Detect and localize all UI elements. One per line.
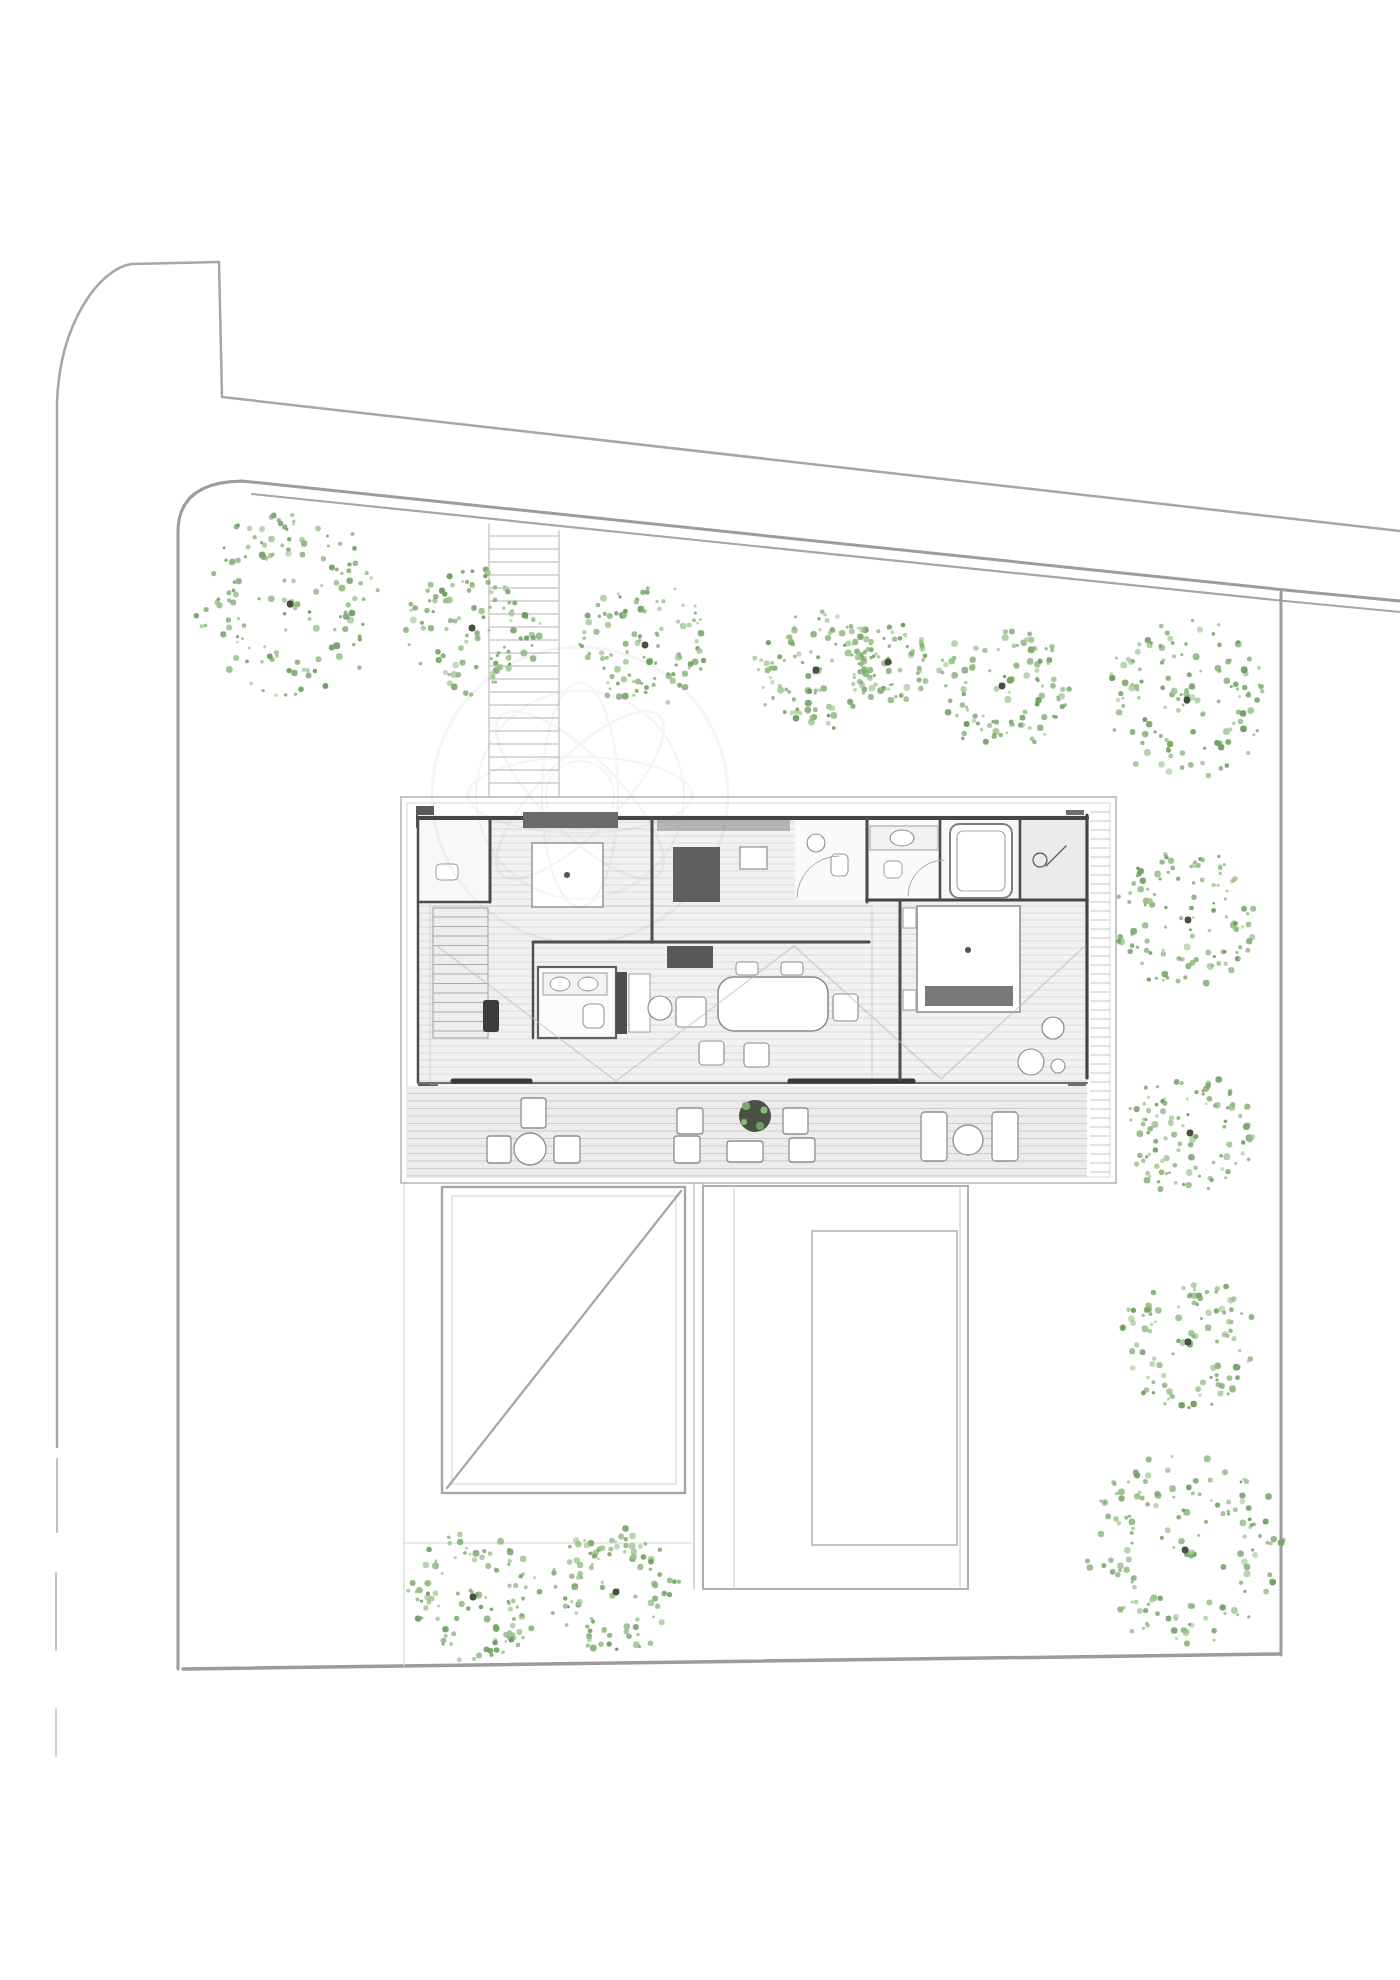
tree-foliage-dot: [1212, 1161, 1216, 1165]
tree-foliage-dot: [551, 1570, 556, 1575]
tree-foliage-dot: [512, 601, 517, 606]
tree-foliage-dot: [329, 565, 335, 571]
tree-icon: [406, 1532, 542, 1663]
tree-foliage-dot: [1192, 881, 1196, 885]
tree-foliage-dot: [1101, 1499, 1108, 1506]
tree-foliage-dot: [524, 636, 529, 641]
tree-foliage-dot: [792, 697, 796, 701]
plan-rect: [629, 974, 650, 1032]
tree-foliage-dot: [1238, 1349, 1241, 1352]
tree-foliage-dot: [1230, 685, 1233, 688]
tree-foliage-dot: [1192, 916, 1195, 919]
tree-foliage-dot: [886, 668, 892, 674]
tree-foliage-dot: [1269, 1542, 1273, 1546]
tree-foliage-dot: [567, 1559, 572, 1564]
tree-foliage-dot: [1191, 1401, 1197, 1407]
tree-foliage-dot: [598, 1641, 604, 1647]
tree-foliage-dot: [839, 630, 846, 637]
tree-foliage-dot: [511, 1599, 516, 1604]
tree-foliage-dot: [413, 605, 418, 610]
tree-foliage-dot: [1239, 1581, 1243, 1585]
tree-foliage-dot: [1225, 739, 1231, 745]
tree-foliage-dot: [245, 660, 249, 664]
plan-rect: [783, 1108, 808, 1134]
tree-foliage-dot: [1130, 729, 1136, 735]
tree-foliage-dot: [1131, 1541, 1134, 1544]
tree-foliage-dot: [469, 692, 474, 697]
tree-foliage-dot: [1165, 1172, 1168, 1175]
tree-foliage-dot: [1101, 1563, 1106, 1568]
tree-foliage-dot: [1140, 962, 1144, 966]
tree-foliage-dot: [1085, 1558, 1090, 1563]
plan-circle: [648, 996, 672, 1020]
tree-foliage-dot: [347, 562, 351, 566]
tree-foliage-dot: [248, 647, 251, 650]
tree-foliage-dot: [1144, 904, 1147, 907]
tree-foliage-dot: [1151, 1121, 1158, 1128]
tree-foliage-dot: [236, 635, 239, 638]
tree-foliage-dot: [494, 1568, 498, 1572]
tree-foliage-dot: [594, 1554, 597, 1557]
tree-foliage-dot: [575, 1541, 581, 1547]
tree-foliage-dot: [1188, 1154, 1195, 1161]
tree-foliage-dot: [1057, 698, 1061, 702]
tree-foliage-dot: [1117, 1562, 1124, 1569]
tree-foliage-dot: [1120, 662, 1127, 669]
tree-foliage-dot: [770, 680, 774, 684]
tree-foliage-dot: [472, 1657, 476, 1661]
tree-foliage-dot: [473, 1550, 480, 1557]
tree-foliage-dot: [1128, 949, 1133, 954]
tree-foliage-dot: [597, 1557, 600, 1560]
tree-foliage-dot: [965, 705, 968, 708]
tree-icon: [1129, 1076, 1256, 1192]
tree-foliage-dot: [632, 631, 638, 637]
tree-foliage-dot: [816, 655, 820, 659]
tree-foliage-dot: [287, 537, 291, 541]
tree-foliage-dot: [825, 635, 831, 641]
tree-foliage-dot: [1214, 1308, 1219, 1313]
tree-foliage-dot: [1186, 1113, 1189, 1116]
tree-foliage-dot: [291, 579, 296, 584]
site-plan-drawing: [0, 0, 1400, 1980]
tree-foliage-dot: [667, 1592, 672, 1597]
tree-foliage-dot: [1137, 1153, 1143, 1159]
tree-foliage-dot: [1137, 886, 1144, 893]
tree-foliage-dot: [1248, 1525, 1252, 1529]
tree-foliage-dot: [951, 672, 958, 679]
tree-foliage-dot: [349, 610, 355, 616]
tree-foliage-dot: [1227, 1512, 1230, 1515]
tree-foliage-dot: [295, 601, 301, 607]
tree-foliage-dot: [1165, 1467, 1171, 1473]
tree-foliage-dot: [1246, 912, 1249, 915]
tree-foliage-dot: [507, 1563, 510, 1566]
tree-foliage-dot: [1126, 657, 1131, 662]
tree-foliage-dot: [292, 520, 296, 524]
tree-foliage-dot: [1155, 977, 1158, 980]
plan-rect: [950, 824, 1012, 898]
tree-foliage-dot: [833, 714, 836, 717]
tree-foliage-dot: [1153, 893, 1157, 897]
tree-foliage-dot: [1166, 976, 1170, 980]
tree-foliage-dot: [1135, 687, 1140, 692]
tree-foliage-dot: [827, 714, 831, 718]
tree-foliage-dot: [948, 658, 955, 665]
tree-foliage-dot: [1178, 1402, 1185, 1409]
tree-foliage-dot: [616, 693, 623, 700]
tree-trunk-dot: [613, 1589, 620, 1596]
tree-foliage-dot: [883, 637, 886, 640]
tree-foliage-dot: [1240, 1520, 1247, 1527]
tree-foliage-dot: [1188, 906, 1192, 910]
tree-foliage-dot: [1143, 1608, 1148, 1613]
tree-foliage-dot: [825, 618, 830, 623]
tree-foliage-dot: [1146, 721, 1152, 727]
tree-foliage-dot: [298, 687, 304, 693]
tree-foliage-dot: [1159, 859, 1164, 864]
tree-foliage-dot: [696, 622, 699, 625]
tree-foliage-dot: [1153, 1503, 1158, 1508]
tree-foliage-dot: [353, 561, 359, 567]
tree-foliage-dot: [698, 630, 705, 637]
tree-foliage-dot: [352, 596, 357, 601]
tree-foliage-dot: [1136, 1130, 1143, 1137]
tree-foliage-dot: [1229, 1307, 1234, 1312]
tree-foliage-dot: [645, 590, 650, 595]
tree-foliage-dot: [1247, 1157, 1251, 1161]
tree-foliage-dot: [441, 1572, 444, 1575]
tree-foliage-dot: [268, 595, 275, 602]
tree-foliage-dot: [1186, 1182, 1192, 1188]
tree-foliage-dot: [338, 584, 345, 591]
tree-foliage-dot: [616, 682, 620, 686]
tree-foliage-dot: [1134, 1472, 1140, 1478]
tree-foliage-dot: [1150, 1361, 1156, 1367]
plan-rect: [677, 1108, 703, 1134]
tree-foliage-dot: [1221, 1333, 1226, 1338]
tree-foliage-dot: [1182, 1509, 1186, 1513]
tree-foliage-dot: [290, 513, 294, 517]
tree-foliage-dot: [1193, 1478, 1199, 1484]
tree-foliage-dot: [1118, 1489, 1125, 1496]
tree-foliage-dot: [568, 1545, 572, 1549]
tree-foliage-dot: [609, 1538, 614, 1543]
tree-foliage-dot: [257, 597, 261, 601]
tree-foliage-dot: [602, 666, 605, 669]
tree-icon: [752, 609, 876, 730]
tree-foliage-dot: [1161, 1373, 1166, 1378]
tree-foliage-dot: [694, 611, 697, 614]
tree-foliage-dot: [426, 1592, 430, 1596]
tree-foliage-dot: [868, 685, 875, 692]
tree-foliage-dot: [1228, 1092, 1232, 1096]
tree-foliage-dot: [618, 1534, 624, 1540]
tree-foliage-dot: [624, 1623, 631, 1630]
tree-foliage-dot: [1224, 678, 1231, 685]
tree-foliage-dot: [1154, 1164, 1159, 1169]
tree-foliage-dot: [1032, 646, 1037, 651]
tree-foliage-dot: [1179, 916, 1183, 920]
tree-foliage-dot: [659, 1619, 665, 1625]
tree-foliage-dot: [1216, 1382, 1222, 1388]
tree-foliage-dot: [961, 686, 967, 692]
tree-foliage-dot: [501, 1650, 505, 1654]
tree-foliage-dot: [1229, 1386, 1235, 1392]
tree-foliage-dot: [648, 1641, 653, 1646]
tree-foliage-dot: [274, 694, 277, 697]
tree-foliage-dot: [522, 612, 529, 619]
tree-foliage-dot: [447, 673, 450, 676]
tree-foliage-dot: [299, 537, 305, 543]
tree-foliage-dot: [1254, 697, 1260, 703]
tree-trunk-dot: [885, 659, 892, 666]
tree-trunk-dot: [287, 601, 294, 608]
tree-foliage-dot: [308, 610, 312, 614]
tree-foliage-dot: [315, 526, 321, 532]
tree-foliage-dot: [1186, 1169, 1193, 1176]
tree-foliage-dot: [471, 605, 477, 611]
tree-foliage-dot: [1256, 729, 1260, 733]
tree-foliage-dot: [1183, 975, 1187, 979]
tree-foliage-dot: [271, 513, 277, 519]
tree-foliage-dot: [1203, 1616, 1208, 1621]
tree-foliage-dot: [1157, 1180, 1161, 1184]
tree-foliage-dot: [1183, 1630, 1189, 1636]
tree-foliage-dot: [479, 1554, 485, 1560]
tree-foliage-dot: [687, 622, 692, 627]
tree-foliage-dot: [1147, 977, 1151, 981]
tree-foliage-dot: [1152, 1391, 1156, 1395]
tree-foliage-dot: [633, 1594, 637, 1598]
tree-foliage-dot: [608, 1547, 613, 1552]
tree-foliage-dot: [200, 624, 204, 628]
tree-foliage-dot: [1190, 934, 1195, 939]
tree-foliage-dot: [1252, 1522, 1256, 1526]
tree-foliage-dot: [1171, 1627, 1178, 1634]
tree-foliage-dot: [580, 644, 584, 648]
tree-foliage-dot: [609, 674, 614, 679]
tree-foliage-dot: [1223, 728, 1230, 735]
tree-foliage-dot: [1144, 1086, 1148, 1090]
tree-foliage-dot: [361, 623, 364, 626]
tree-foliage-dot: [1142, 1314, 1145, 1317]
tree-foliage-dot: [1151, 1290, 1156, 1295]
tree-foliage-dot: [1220, 1604, 1226, 1610]
plan-rect: [699, 1041, 724, 1065]
tree-foliage-dot: [973, 645, 978, 650]
plan-rect: [744, 1043, 769, 1067]
tree-foliage-dot: [476, 1652, 482, 1658]
plan-circle: [965, 947, 971, 953]
tree-foliage-dot: [921, 658, 925, 662]
tree-foliage-dot: [1184, 1641, 1190, 1647]
tree-foliage-dot: [1012, 644, 1017, 649]
tree-foliage-dot: [1159, 734, 1163, 738]
tree-foliage-dot: [1191, 1334, 1195, 1338]
tree-foliage-dot: [672, 1579, 677, 1584]
plan-rect: [583, 1004, 604, 1028]
tree-foliage-dot: [1198, 1492, 1202, 1496]
tree-foliage-dot: [1205, 1290, 1210, 1295]
tree-foliage-dot: [618, 595, 621, 598]
tree-foliage-dot: [1171, 688, 1178, 695]
tree-foliage-dot: [582, 630, 586, 634]
tree-foliage-dot: [513, 1583, 518, 1588]
tree-foliage-dot: [1180, 750, 1185, 755]
tree-foliage-dot: [573, 1586, 577, 1590]
tree-foliage-dot: [563, 1604, 568, 1609]
tree-foliage-dot: [1263, 1519, 1269, 1525]
tree-foliage-dot: [1162, 978, 1165, 981]
tree-foliage-dot: [658, 1547, 663, 1552]
tree-foliage-dot: [1181, 1124, 1185, 1128]
tree-foliage-dot: [516, 1605, 519, 1608]
tree-foliage-dot: [1170, 1394, 1175, 1399]
tree-foliage-dot: [1180, 957, 1185, 962]
tree-foliage-dot: [677, 1580, 681, 1584]
tree-foliage-dot: [1131, 659, 1135, 663]
tree-foliage-dot: [576, 1599, 582, 1605]
tree-foliage-dot: [1222, 1469, 1228, 1475]
tree-foliage-dot: [788, 639, 794, 645]
tree-foliage-dot: [1216, 961, 1221, 966]
tree-foliage-dot: [1007, 677, 1014, 684]
tree-foliage-dot: [1166, 870, 1170, 874]
tree-foliage-dot: [614, 666, 621, 673]
tree-foliage-dot: [764, 660, 770, 666]
tree-foliage-dot: [1109, 675, 1115, 681]
tree-foliage-dot: [362, 597, 366, 601]
tree-foliage-dot: [506, 655, 512, 661]
tree-foliage-dot: [460, 660, 466, 666]
tree-foliage-dot: [451, 1631, 456, 1636]
tree-foliage-dot: [624, 1537, 628, 1541]
tree-foliage-dot: [519, 636, 523, 640]
plan-rect: [921, 1112, 947, 1161]
tree-icon: [1109, 619, 1264, 778]
plan-rect: [992, 1112, 1018, 1161]
tree-foliage-dot: [520, 1555, 527, 1562]
tree-foliage-dot: [1160, 1158, 1165, 1163]
tree-foliage-dot: [1175, 1636, 1179, 1640]
plan-circle: [953, 1125, 983, 1155]
tree-foliage-dot: [631, 1549, 637, 1555]
tree-foliage-dot: [458, 645, 464, 651]
tree-foliage-dot: [457, 1532, 463, 1538]
tree-foliage-dot: [220, 631, 226, 637]
tree-foliage-dot: [1224, 962, 1228, 966]
tree-foliage-dot: [903, 633, 907, 637]
tree-foliage-dot: [1180, 1081, 1184, 1085]
tree-foliage-dot: [652, 683, 656, 687]
tree-foliage-dot: [1140, 741, 1144, 745]
tree-foliage-dot: [1155, 1114, 1159, 1118]
tree-foliage-dot: [1215, 1076, 1222, 1083]
tree-foliage-dot: [1116, 698, 1121, 703]
tree-foliage-dot: [1211, 1628, 1216, 1633]
tree-foliage-dot: [835, 614, 840, 619]
tree-foliage-dot: [1060, 687, 1065, 692]
tree-foliage-dot: [409, 608, 413, 612]
tree-foliage-dot: [1218, 864, 1222, 868]
tree-foliage-dot: [820, 609, 825, 614]
tree-foliage-dot: [1246, 692, 1251, 697]
tree-foliage-dot: [1168, 1171, 1171, 1174]
tree-foliage-dot: [598, 1546, 602, 1550]
tree-foliage-dot: [638, 1645, 641, 1648]
tree-foliage-dot: [1172, 1546, 1175, 1549]
tree-foliage-dot: [1239, 1492, 1245, 1498]
tree-foliage-dot: [1160, 1108, 1166, 1114]
tree-foliage-dot: [589, 1552, 592, 1555]
tree-foliage-dot: [490, 1608, 493, 1611]
tree-foliage-dot: [1249, 1314, 1255, 1320]
tree-foliage-dot: [425, 588, 430, 593]
tree-foliage-dot: [488, 605, 492, 609]
tree-foliage-dot: [410, 617, 417, 624]
tree-foliage-dot: [677, 683, 682, 688]
tree-foliage-dot: [442, 591, 447, 596]
tree-icon: [1120, 1282, 1255, 1409]
tree-foliage-dot: [1113, 728, 1117, 732]
tree-foliage-dot: [464, 639, 468, 643]
tree-foliage-dot: [796, 707, 800, 711]
tree-foliage-dot: [485, 1563, 491, 1569]
tree-foliage-dot: [1136, 946, 1139, 949]
tree-foliage-dot: [1023, 710, 1028, 715]
tree-foliage-dot: [260, 660, 264, 664]
tree-foliage-dot: [1191, 895, 1196, 900]
tree-foliage-dot: [1208, 929, 1212, 933]
tree-foliage-dot: [432, 1562, 439, 1569]
tree-foliage-dot: [536, 633, 543, 640]
tree-foliage-dot: [1147, 1096, 1151, 1100]
tree-foliage-dot: [1200, 878, 1205, 883]
tree-foliage-dot: [465, 1547, 468, 1550]
tree-foliage-dot: [997, 648, 1000, 651]
tree-foliage-dot: [1028, 637, 1034, 643]
tree-foliage-dot: [805, 707, 812, 714]
tree-trunk-dot: [813, 667, 820, 674]
tree-foliage-dot: [1009, 722, 1014, 727]
tree-foliage-dot: [291, 670, 297, 676]
tree-foliage-dot: [830, 705, 836, 711]
tree-foliage-dot: [994, 719, 999, 724]
tree-foliage-dot: [475, 1592, 482, 1599]
tree-foliage-dot: [1172, 655, 1176, 659]
tree-foliage-dot: [623, 609, 628, 614]
tree-foliage-dot: [284, 628, 287, 631]
tree-foliage-dot: [1147, 898, 1153, 904]
tree-foliage-dot: [503, 585, 506, 588]
tree-foliage-dot: [454, 1616, 459, 1621]
plan-circle: [514, 1133, 546, 1165]
tree-foliage-dot: [1233, 921, 1238, 926]
tree-foliage-dot: [1127, 1481, 1130, 1484]
tree-foliage-dot: [1132, 1308, 1135, 1311]
tree-foliage-dot: [629, 1543, 636, 1550]
tree-foliage-dot: [316, 656, 322, 662]
tree-foliage-dot: [226, 617, 231, 622]
tree-foliage-dot: [889, 683, 892, 686]
tree-foliage-dot: [681, 603, 685, 607]
tree-foliage-dot: [465, 580, 469, 584]
site-plan-page: [0, 0, 1400, 1980]
tree-foliage-dot: [1205, 950, 1211, 956]
tree-foliage-dot: [1144, 1177, 1151, 1184]
tree-foliage-dot: [333, 628, 337, 632]
